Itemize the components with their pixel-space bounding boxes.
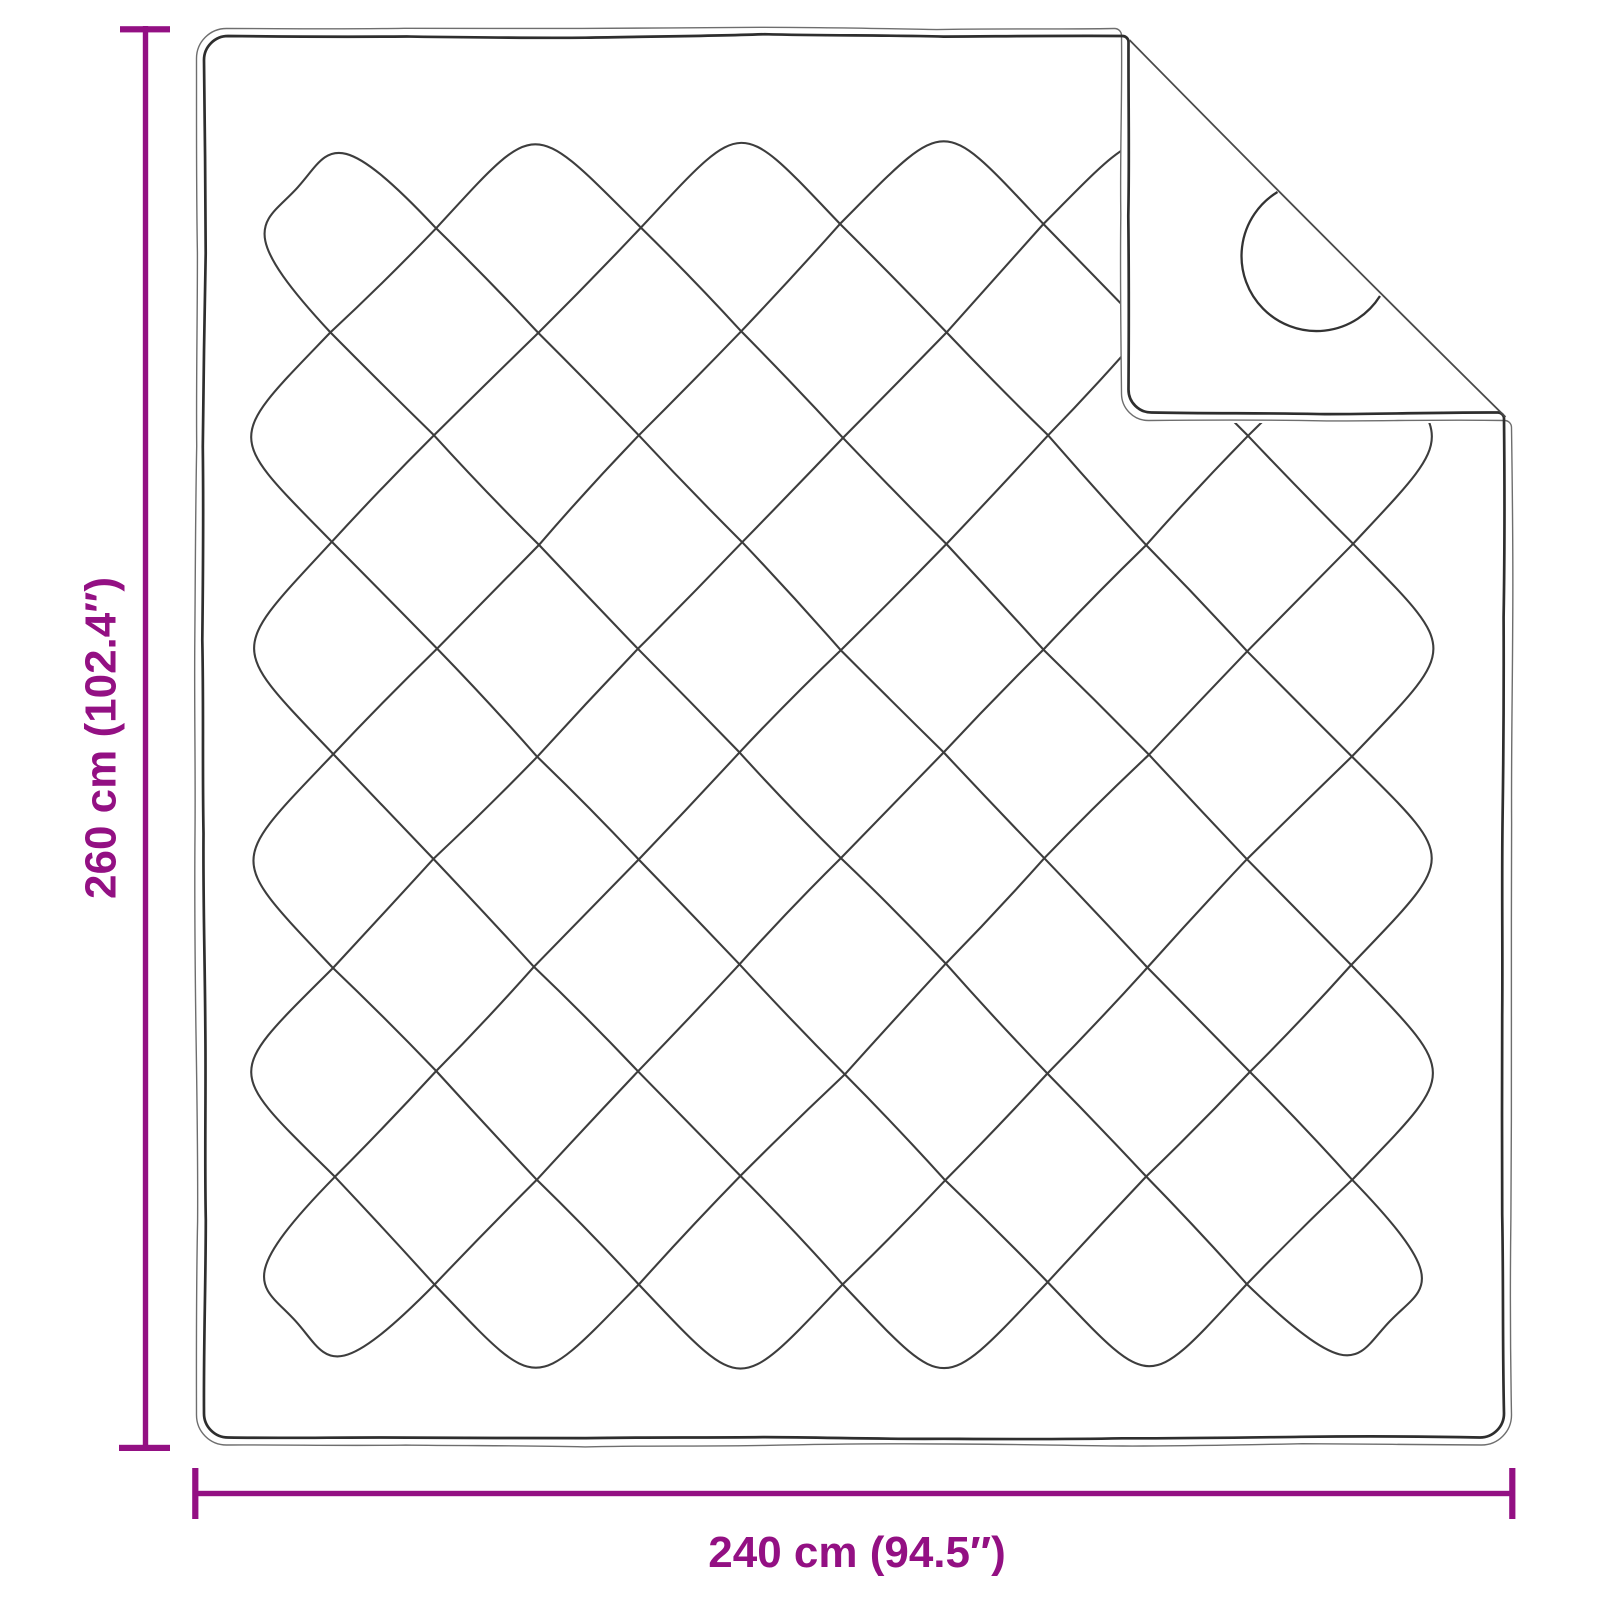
svg-text:240 cm (94.5″): 240 cm (94.5″)	[708, 1528, 1005, 1577]
svg-text:260 cm (102.4″): 260 cm (102.4″)	[77, 577, 126, 899]
